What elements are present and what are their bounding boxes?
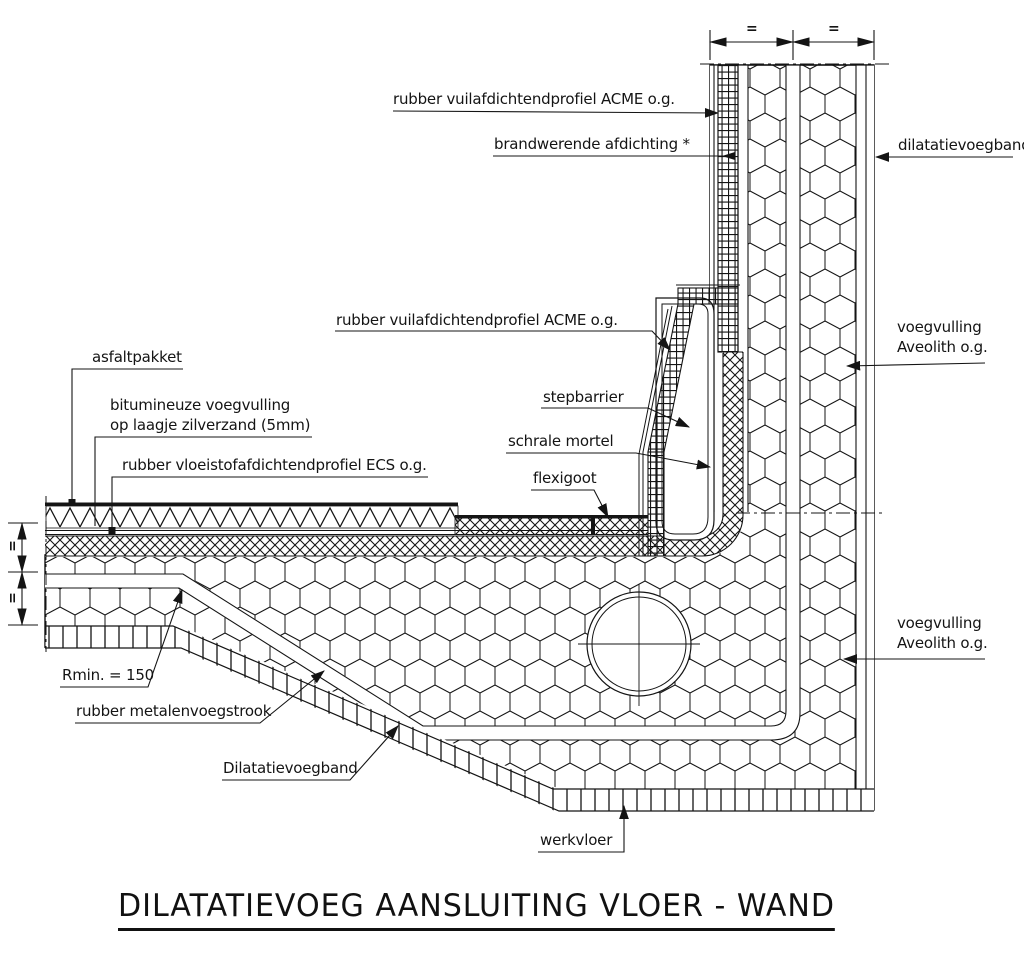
label-rubber-profiel-ecs: rubber vloeistofafdichtendprofiel ECS o.… <box>122 455 427 475</box>
label-voegvulling-onder: voegvulling Aveolith o.g. <box>897 613 988 653</box>
label-stepbarrier: stepbarrier <box>543 387 624 407</box>
label-dilatatievoegband-vloer: Dilatatievoegband <box>223 758 358 778</box>
dim-left-span-lower: = <box>4 592 20 604</box>
left-dimension <box>8 523 38 625</box>
label-schrale-mortel: schrale mortel <box>508 431 614 451</box>
asphalt-layer <box>46 506 458 528</box>
dim-top-span-left: = <box>746 21 758 37</box>
label-metalenvoegstrook: rubber metalenvoegstrook <box>76 701 271 721</box>
label-asfaltpakket: asfaltpakket <box>92 347 182 367</box>
wall-edge-band <box>856 65 874 790</box>
label-dilatatievoegband-wand: dilatatievoegband <box>898 135 1024 155</box>
label-voegvulling-boven: voegvulling Aveolith o.g. <box>897 317 988 357</box>
label-brandwerende-afdichting: brandwerende afdichting * <box>494 134 690 154</box>
label-flexigoot: flexigoot <box>533 468 596 488</box>
drawing-title: DILATATIEVOEG AANSLUITING VLOER - WAND <box>118 888 835 931</box>
label-rubber-profiel-acme-mid: rubber vuilafdichtendprofiel ACME o.g. <box>336 310 618 330</box>
wall-grid-hatch-strip <box>718 65 738 352</box>
floor-top-line <box>45 503 458 507</box>
label-rubber-profiel-acme-top: rubber vuilafdichtendprofiel ACME o.g. <box>393 89 675 109</box>
label-werkvloer: werkvloer <box>540 830 612 850</box>
dim-top-span-right: = <box>828 21 840 37</box>
dim-left-span-upper: = <box>4 540 20 552</box>
top-dimension <box>710 30 874 60</box>
technical-drawing-sheet: rubber vuilafdichtendprofiel ACME o.g. b… <box>0 0 1024 958</box>
label-bitumineuze-voegvulling: bitumineuze voegvulling op laagje zilver… <box>110 395 310 435</box>
wall-joint-gap <box>786 65 800 540</box>
label-rmin: Rmin. = 150 <box>62 665 154 685</box>
